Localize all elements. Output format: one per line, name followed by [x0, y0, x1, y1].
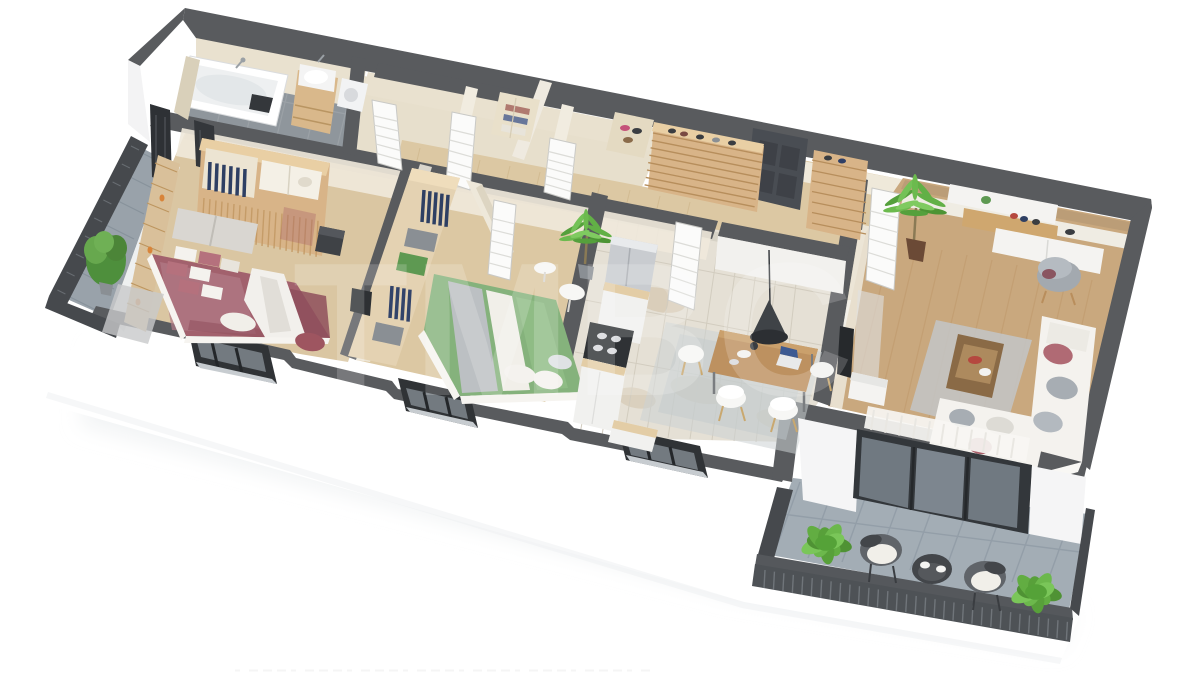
svg-text:TMBC: TMBC [293, 224, 858, 436]
